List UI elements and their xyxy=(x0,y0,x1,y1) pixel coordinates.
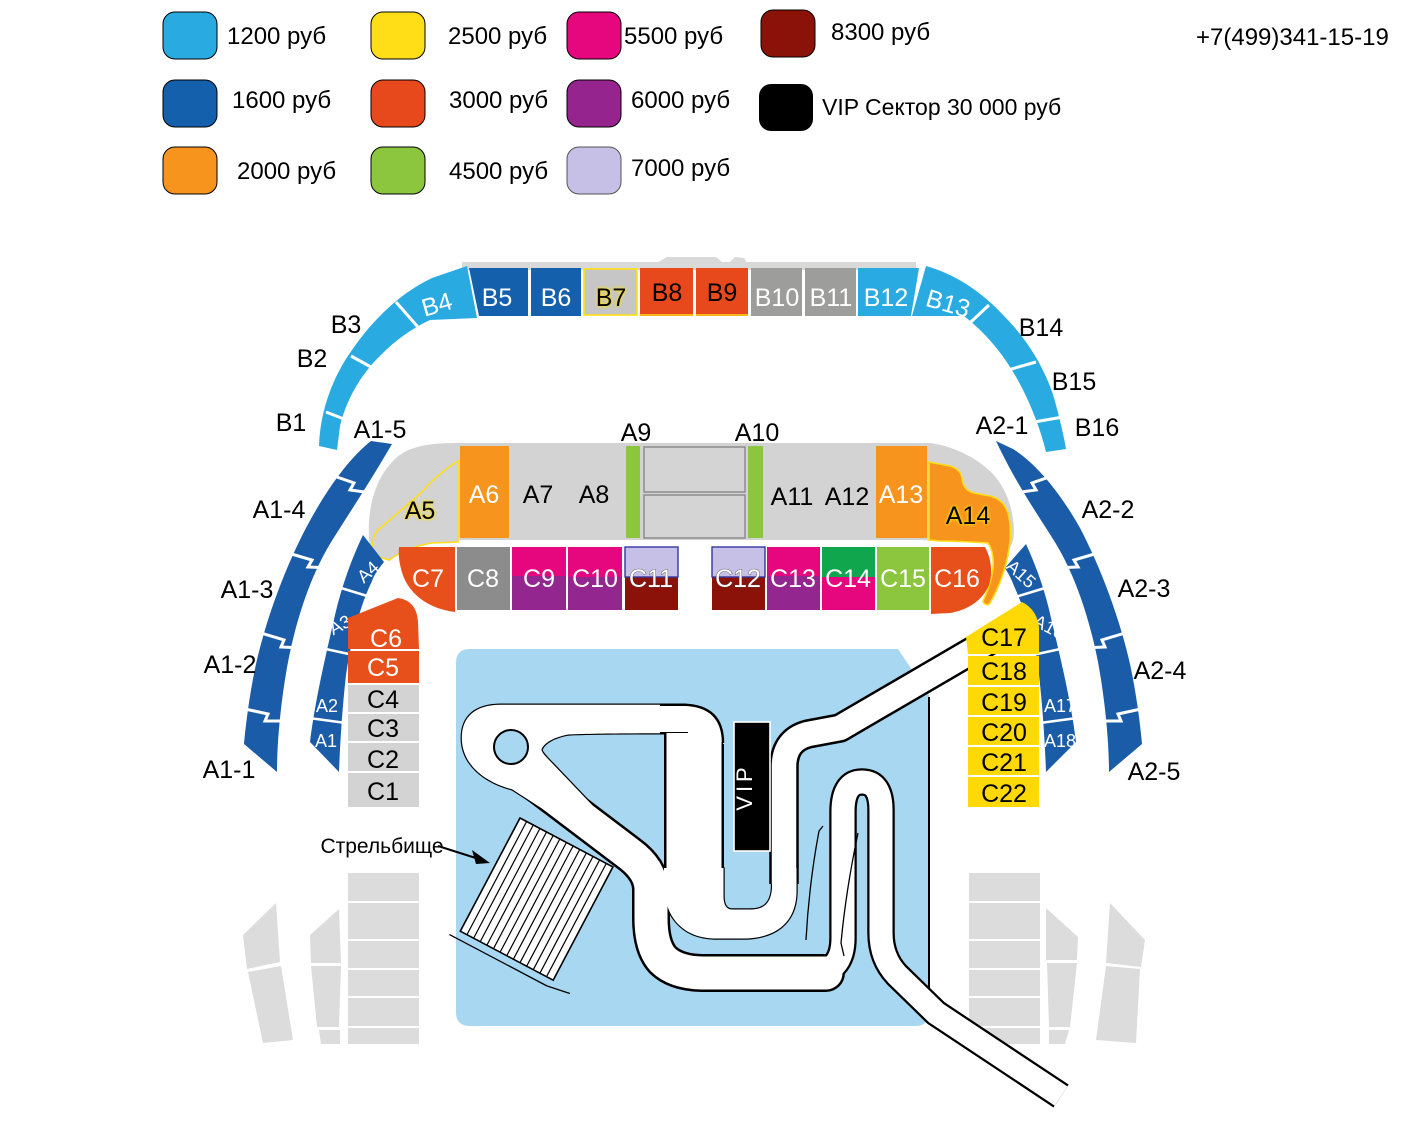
svg-text:C11: C11 xyxy=(629,565,673,593)
svg-text:C15: C15 xyxy=(880,565,926,593)
svg-text:C3: C3 xyxy=(367,715,399,743)
svg-text:C8: C8 xyxy=(467,565,499,593)
svg-text:C19: C19 xyxy=(981,689,1027,717)
svg-text:B1: B1 xyxy=(276,409,307,437)
svg-text:C13: C13 xyxy=(770,565,816,593)
svg-text:A6: A6 xyxy=(469,481,500,509)
svg-text:B8: B8 xyxy=(652,279,683,307)
svg-text:A2-4: A2-4 xyxy=(1134,657,1187,685)
svg-text:A1-4: A1-4 xyxy=(253,496,306,524)
svg-text:B10: B10 xyxy=(755,284,799,312)
svg-text:1600 руб: 1600 руб xyxy=(232,87,331,114)
svg-text:A9: A9 xyxy=(621,419,652,447)
svg-text:A11: A11 xyxy=(771,483,814,511)
svg-text:1200 руб: 1200 руб xyxy=(227,23,326,50)
svg-text:A8: A8 xyxy=(579,481,610,509)
svg-text:C12: C12 xyxy=(715,565,761,593)
svg-text:A2-5: A2-5 xyxy=(1128,758,1181,786)
svg-text:3000 руб: 3000 руб xyxy=(449,87,548,114)
svg-text:C18: C18 xyxy=(981,658,1027,686)
svg-text:B14: B14 xyxy=(1019,314,1064,342)
svg-text:C4: C4 xyxy=(367,686,399,714)
svg-text:A2: A2 xyxy=(316,696,338,716)
svg-text:C21: C21 xyxy=(981,749,1027,777)
svg-text:B11: B11 xyxy=(810,284,853,312)
svg-text:+7(499)341-15-19: +7(499)341-15-19 xyxy=(1196,24,1389,51)
svg-text:C9: C9 xyxy=(523,565,555,593)
svg-text:A1-1: A1-1 xyxy=(203,756,256,784)
svg-text:VIP: VIP xyxy=(732,763,757,810)
svg-text:A13: A13 xyxy=(879,481,923,509)
svg-text:B9: B9 xyxy=(707,279,738,307)
svg-text:C22: C22 xyxy=(981,780,1027,808)
svg-text:Стрельбище: Стрельбище xyxy=(320,835,443,858)
svg-text:B16: B16 xyxy=(1075,414,1119,442)
svg-text:B6: B6 xyxy=(541,284,572,312)
svg-text:A14: A14 xyxy=(946,502,991,530)
svg-text:2000 руб: 2000 руб xyxy=(237,158,336,185)
svg-text:A10: A10 xyxy=(735,419,779,447)
svg-text:B12: B12 xyxy=(864,284,908,312)
svg-text:B2: B2 xyxy=(297,345,328,373)
svg-text:A7: A7 xyxy=(523,481,554,509)
svg-text:B7: B7 xyxy=(596,284,627,312)
svg-text:A2-1: A2-1 xyxy=(976,412,1029,440)
svg-text:A1-2: A1-2 xyxy=(204,651,257,679)
svg-text:A17: A17 xyxy=(1044,696,1076,716)
svg-text:7000 руб: 7000 руб xyxy=(631,155,730,182)
svg-text:C5: C5 xyxy=(367,654,399,682)
svg-text:C1: C1 xyxy=(367,778,399,806)
svg-text:C2: C2 xyxy=(367,746,399,774)
svg-text:4500 руб: 4500 руб xyxy=(449,158,548,185)
svg-text:6000 руб: 6000 руб xyxy=(631,87,730,114)
svg-text:A2-3: A2-3 xyxy=(1118,575,1171,603)
svg-text:A1-5: A1-5 xyxy=(354,416,407,444)
svg-text:VIP Сектор 30 000 руб: VIP Сектор 30 000 руб xyxy=(822,94,1061,120)
svg-text:A2-2: A2-2 xyxy=(1082,496,1135,524)
svg-text:B15: B15 xyxy=(1052,368,1096,396)
svg-text:C7: C7 xyxy=(412,565,444,593)
svg-text:C6: C6 xyxy=(370,625,402,653)
svg-text:B3: B3 xyxy=(331,311,362,339)
svg-text:A5: A5 xyxy=(405,497,436,525)
svg-text:C14: C14 xyxy=(825,565,871,593)
svg-text:C17: C17 xyxy=(981,624,1027,652)
svg-text:B5: B5 xyxy=(482,284,513,312)
svg-text:2500 руб: 2500 руб xyxy=(448,23,547,50)
svg-text:A1: A1 xyxy=(315,731,337,751)
svg-text:A12: A12 xyxy=(825,483,869,511)
svg-text:A18: A18 xyxy=(1044,731,1076,751)
svg-text:A1-3: A1-3 xyxy=(221,576,274,604)
svg-text:C20: C20 xyxy=(981,719,1027,747)
svg-text:8300 руб: 8300 руб xyxy=(831,19,930,46)
svg-text:C10: C10 xyxy=(572,565,618,593)
svg-text:C16: C16 xyxy=(934,565,980,593)
svg-text:5500 руб: 5500 руб xyxy=(624,23,723,50)
